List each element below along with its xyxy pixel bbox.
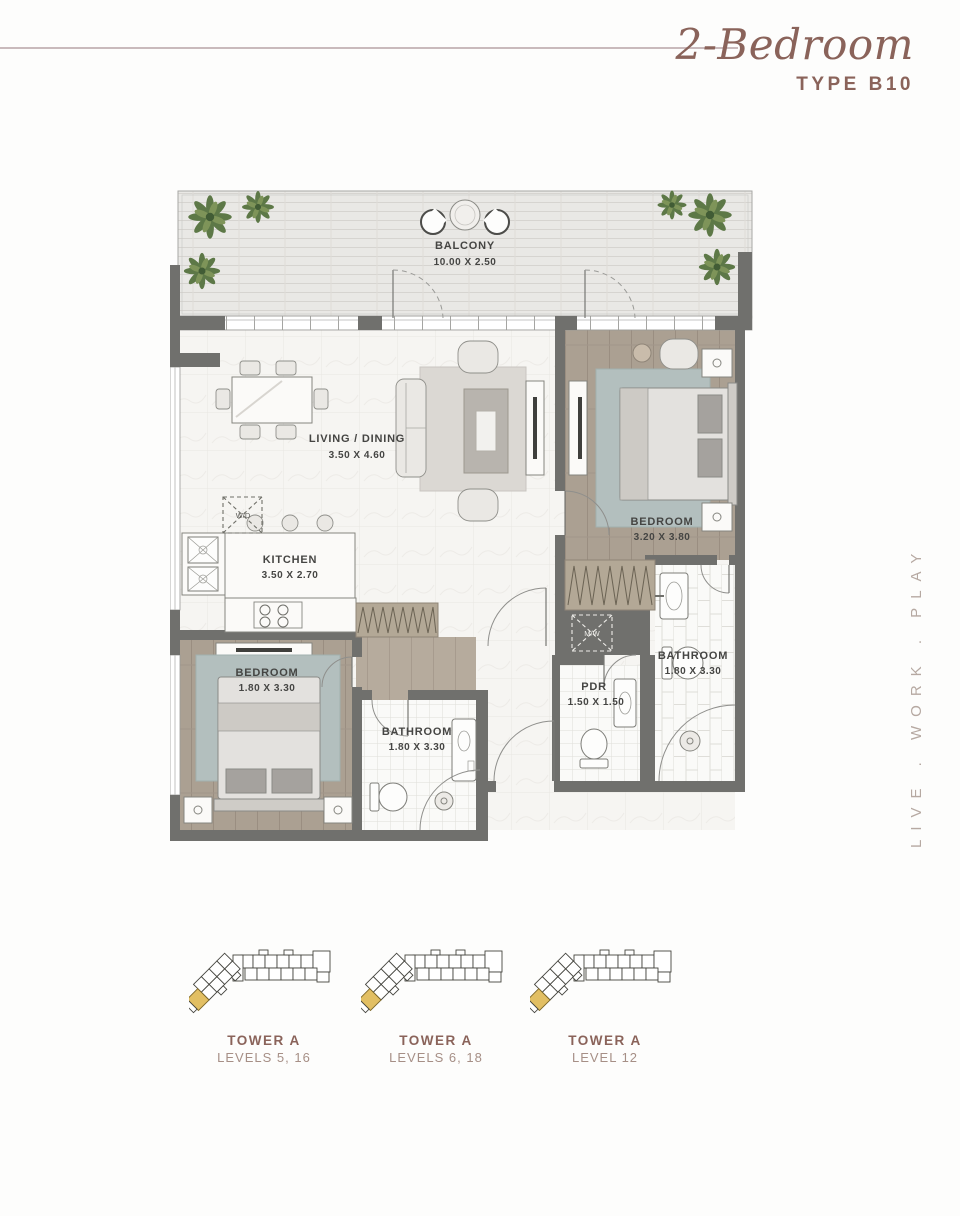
living-label: LIVING / DINING — [309, 433, 405, 445]
wardrobe-main — [565, 560, 655, 610]
live-work-play-tagline: LIVE . WORK . PLAY — [908, 545, 925, 848]
sofa — [396, 379, 426, 477]
nightstand — [324, 797, 352, 823]
living-dims: 3.50 X 4.60 — [329, 450, 386, 461]
balcony-label: BALCONY — [435, 240, 495, 252]
header-rule — [0, 47, 738, 49]
keyplan-tower-label: TOWER A — [184, 1033, 344, 1048]
pdr-label: PDR — [581, 681, 607, 693]
window-band-top — [178, 316, 752, 330]
brochure-page: 2-Bedroom TYPE B10 — [0, 0, 960, 1216]
nightstand — [702, 349, 732, 377]
nightstand — [702, 503, 732, 531]
bedroom-main-dims: 3.20 X 3.80 — [634, 532, 691, 543]
stool — [282, 515, 298, 531]
armchair — [660, 339, 698, 369]
plant-icon — [242, 191, 274, 223]
bathroom-main-dims: 1.80 X 3.30 — [665, 666, 722, 677]
ottoman — [458, 489, 498, 521]
dining-chair — [240, 361, 260, 375]
tv-console-living — [526, 381, 544, 475]
keyplan-map-icon — [189, 942, 339, 1024]
svg-text:M/W: M/W — [584, 629, 600, 638]
keyplan-tower-label: TOWER A — [356, 1033, 516, 1048]
window-left-bedroom — [170, 655, 180, 795]
bed-main — [620, 383, 737, 505]
keyplan-levels-label: LEVEL 12 — [525, 1050, 685, 1065]
kitchen-counter — [225, 598, 356, 632]
page-title: 2-Bedroom — [676, 20, 915, 69]
pillow — [226, 769, 266, 793]
keyplan-tower-a-3: TOWER A LEVEL 12 — [525, 942, 685, 1065]
kitchen-label: KITCHEN — [263, 554, 318, 566]
plant-icon — [688, 193, 732, 237]
keyplan-map-icon — [530, 942, 680, 1024]
plant-icon — [699, 249, 735, 285]
dining-chair — [276, 425, 296, 439]
window-left-living — [170, 367, 180, 610]
sink-icon — [655, 573, 688, 619]
pillow — [698, 439, 722, 477]
stool — [317, 515, 333, 531]
keyplan-map-icon — [361, 942, 511, 1024]
nightstand — [184, 797, 212, 823]
balcony-chair — [421, 210, 445, 234]
bedroom-main-label: BEDROOM — [630, 516, 693, 528]
keyplan-tower-label: TOWER A — [525, 1033, 685, 1048]
balcony-dims: 10.00 X 2.50 — [434, 257, 497, 268]
dining-chair — [314, 389, 328, 409]
kitchen-dims: 3.50 X 2.70 — [262, 570, 319, 581]
pillow — [698, 395, 722, 433]
tv-console-bedroom — [569, 381, 587, 475]
dining-chair — [276, 361, 296, 375]
keyplan-levels-label: LEVELS 5, 16 — [184, 1050, 344, 1065]
bathroom-second-label: BATHROOM — [382, 726, 452, 738]
dining-table — [232, 377, 312, 423]
balcony-area: BALCONY 10.00 X 2.50 — [178, 191, 752, 319]
bedroom-second-label: BEDROOM — [235, 667, 298, 679]
page-subtitle: TYPE B10 — [796, 74, 914, 96]
keyplans: TOWER A LEVELS 5, 16 TOWER A LEVELS 6, 1… — [0, 942, 960, 1072]
toilet-icon — [370, 783, 407, 811]
dining-chair — [216, 389, 230, 409]
plant-icon — [184, 253, 220, 289]
svg-text:W/D: W/D — [236, 511, 251, 520]
dining-chair — [240, 425, 260, 439]
side-table — [633, 344, 651, 362]
plant-icon — [658, 191, 687, 220]
ottoman — [458, 341, 498, 373]
floorplan: BALCONY 10.00 X 2.50 — [170, 185, 760, 845]
keyplan-levels-label: LEVELS 6, 18 — [356, 1050, 516, 1065]
pdr-dims: 1.50 X 1.50 — [568, 697, 625, 708]
bed-second — [214, 677, 324, 811]
bathroom-second-dims: 1.80 X 3.30 — [389, 742, 446, 753]
balcony-chair — [485, 210, 509, 234]
plant-icon — [188, 195, 232, 239]
toilet-icon — [580, 729, 608, 768]
keyplan-tower-a-1: TOWER A LEVELS 5, 16 — [184, 942, 344, 1065]
bathroom-main-label: BATHROOM — [658, 650, 728, 662]
closet — [356, 603, 438, 637]
bedroom-second-dims: 1.80 X 3.30 — [239, 683, 296, 694]
keyplan-tower-a-2: TOWER A LEVELS 6, 18 — [356, 942, 516, 1065]
pillow — [272, 769, 312, 793]
balcony-table — [450, 200, 480, 230]
